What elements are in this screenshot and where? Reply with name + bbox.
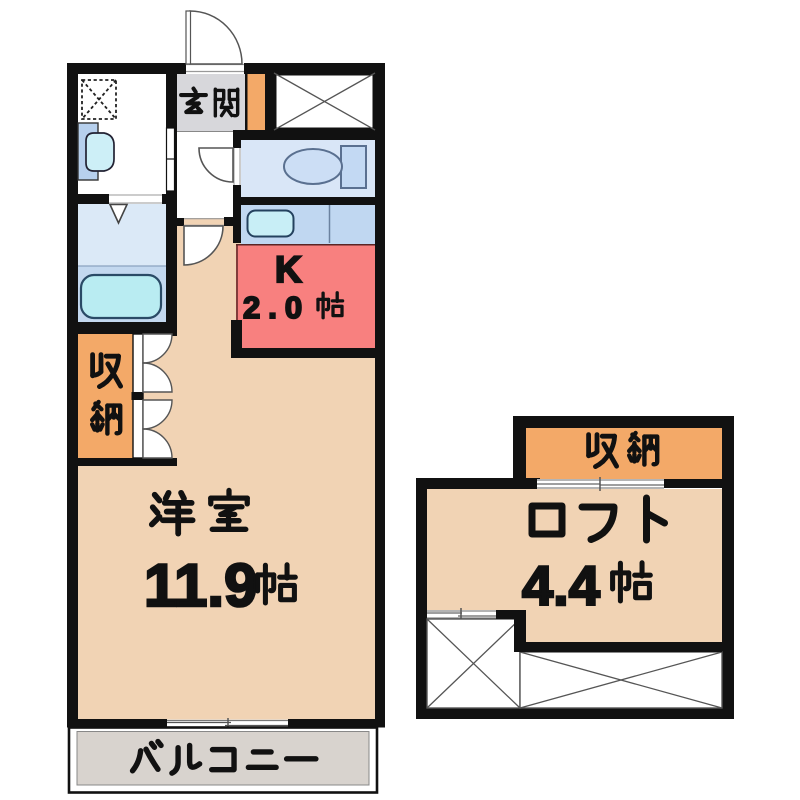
- svg-text:2.0: 2.0: [243, 290, 310, 325]
- svg-text:4.4: 4.4: [522, 554, 600, 617]
- svg-text:K: K: [275, 249, 302, 290]
- svg-text:11.9: 11.9: [144, 552, 257, 619]
